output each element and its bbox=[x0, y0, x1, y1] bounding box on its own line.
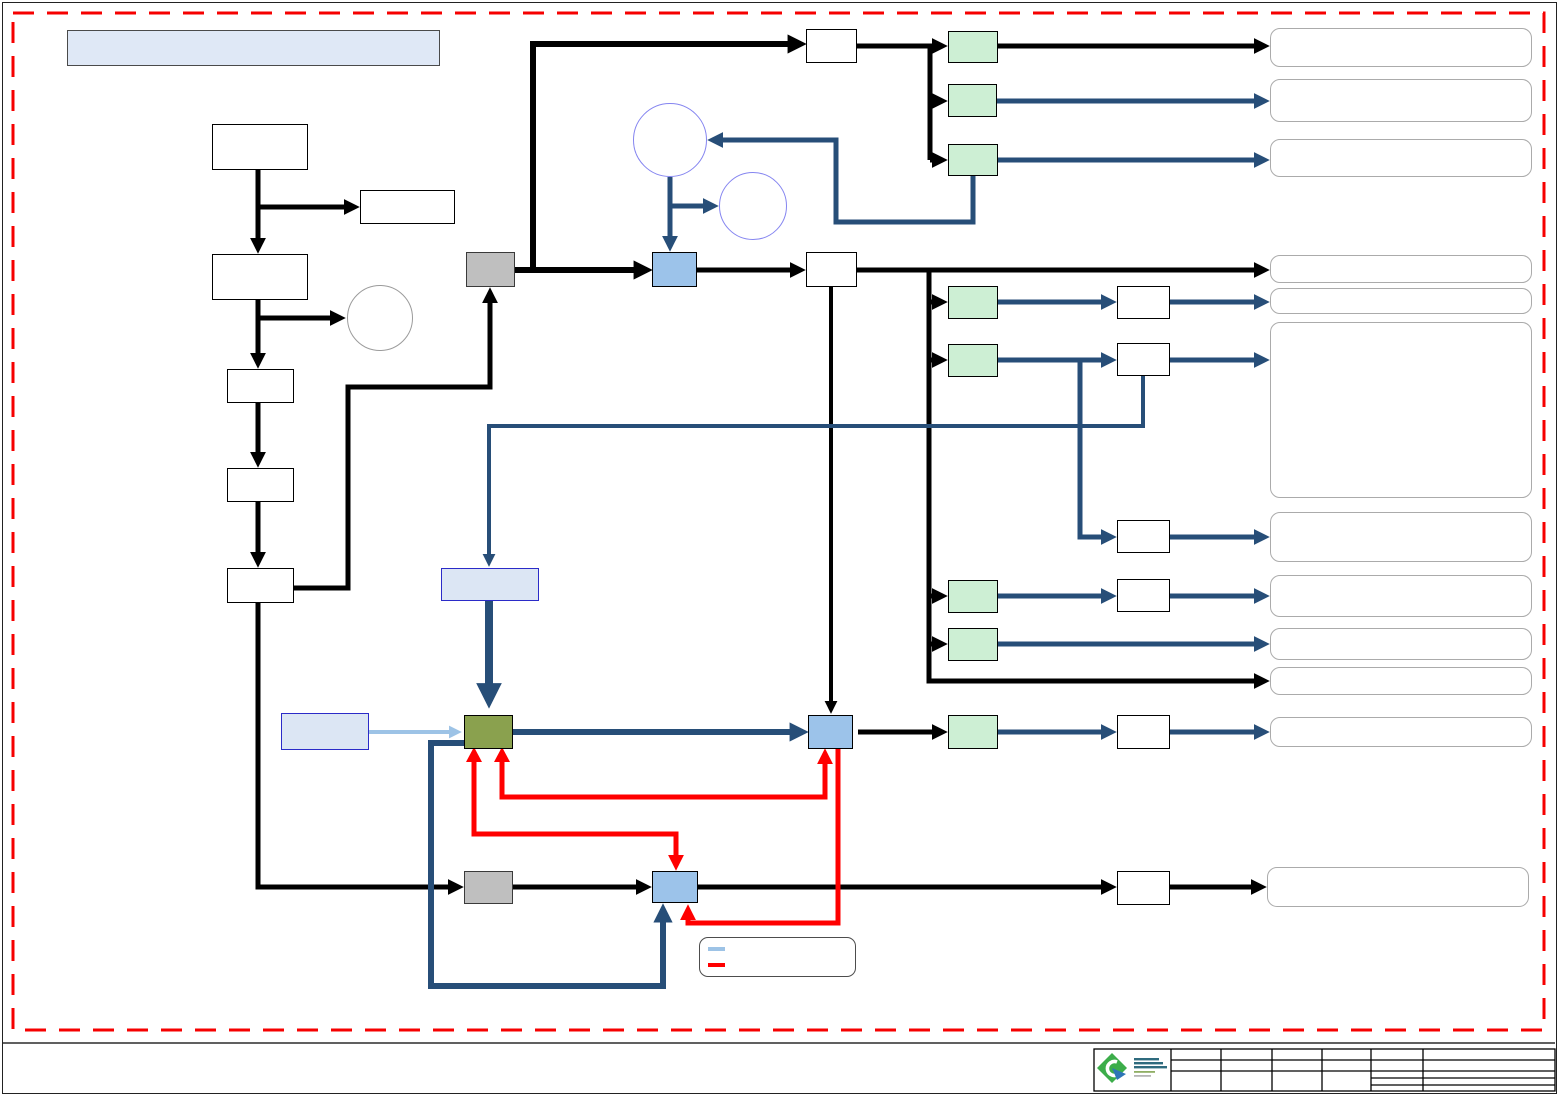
flow-box-3 bbox=[227, 369, 294, 403]
rounded-output-2 bbox=[1270, 79, 1532, 122]
rounded-output-tall bbox=[1270, 322, 1532, 498]
green-box-1 bbox=[948, 31, 998, 63]
circle-lower bbox=[719, 172, 787, 240]
green-box-7 bbox=[948, 628, 998, 661]
blue-box-2 bbox=[808, 715, 853, 749]
legend-red-swatch bbox=[708, 963, 725, 967]
rounded-output-6 bbox=[1270, 512, 1532, 562]
rounded-output-7 bbox=[1270, 575, 1532, 617]
panel-box-left bbox=[281, 713, 369, 750]
rounded-output-3 bbox=[1270, 139, 1532, 177]
white-relay-2 bbox=[806, 252, 857, 287]
rounded-output-10 bbox=[1270, 717, 1532, 747]
rounded-output-8 bbox=[1270, 628, 1532, 660]
green-box-2 bbox=[948, 84, 997, 117]
black-connectors bbox=[258, 44, 1265, 887]
green-box-8 bbox=[948, 715, 998, 749]
white-relay-1 bbox=[806, 29, 857, 63]
diagram-page bbox=[0, 0, 1558, 1095]
rounded-output-1 bbox=[1270, 28, 1532, 67]
flow-box-4 bbox=[227, 468, 294, 502]
blue-box-3 bbox=[652, 871, 698, 903]
legend-box bbox=[699, 937, 856, 977]
white-relay-3 bbox=[1117, 286, 1170, 319]
flow-box-2 bbox=[212, 254, 308, 300]
blue-box-1 bbox=[652, 252, 697, 287]
olive-box bbox=[464, 715, 513, 749]
rounded-output-5 bbox=[1270, 288, 1532, 314]
white-relay-7 bbox=[1117, 715, 1170, 749]
white-relay-8 bbox=[1117, 871, 1170, 905]
rounded-output-11 bbox=[1267, 867, 1529, 907]
green-box-4 bbox=[948, 286, 998, 319]
rounded-output-4 bbox=[1270, 255, 1532, 283]
side-circle bbox=[347, 285, 413, 351]
gray-box-bottom bbox=[464, 871, 513, 904]
green-box-6 bbox=[948, 580, 998, 613]
red-arrowheads bbox=[466, 747, 510, 762]
flow-side-box bbox=[360, 190, 455, 224]
white-relay-4 bbox=[1117, 343, 1170, 376]
flow-box-5 bbox=[227, 568, 294, 603]
rounded-output-9 bbox=[1270, 667, 1532, 695]
panel-box-upper bbox=[441, 568, 539, 601]
gray-box-top bbox=[466, 252, 515, 287]
green-box-5 bbox=[948, 344, 998, 377]
white-relay-5 bbox=[1117, 520, 1170, 553]
white-relay-6 bbox=[1117, 579, 1170, 612]
header-box bbox=[67, 30, 440, 66]
circle-upper bbox=[633, 103, 707, 177]
flow-box-1 bbox=[212, 124, 308, 170]
green-box-3 bbox=[948, 144, 998, 176]
legend-lightblue-swatch bbox=[708, 947, 725, 951]
